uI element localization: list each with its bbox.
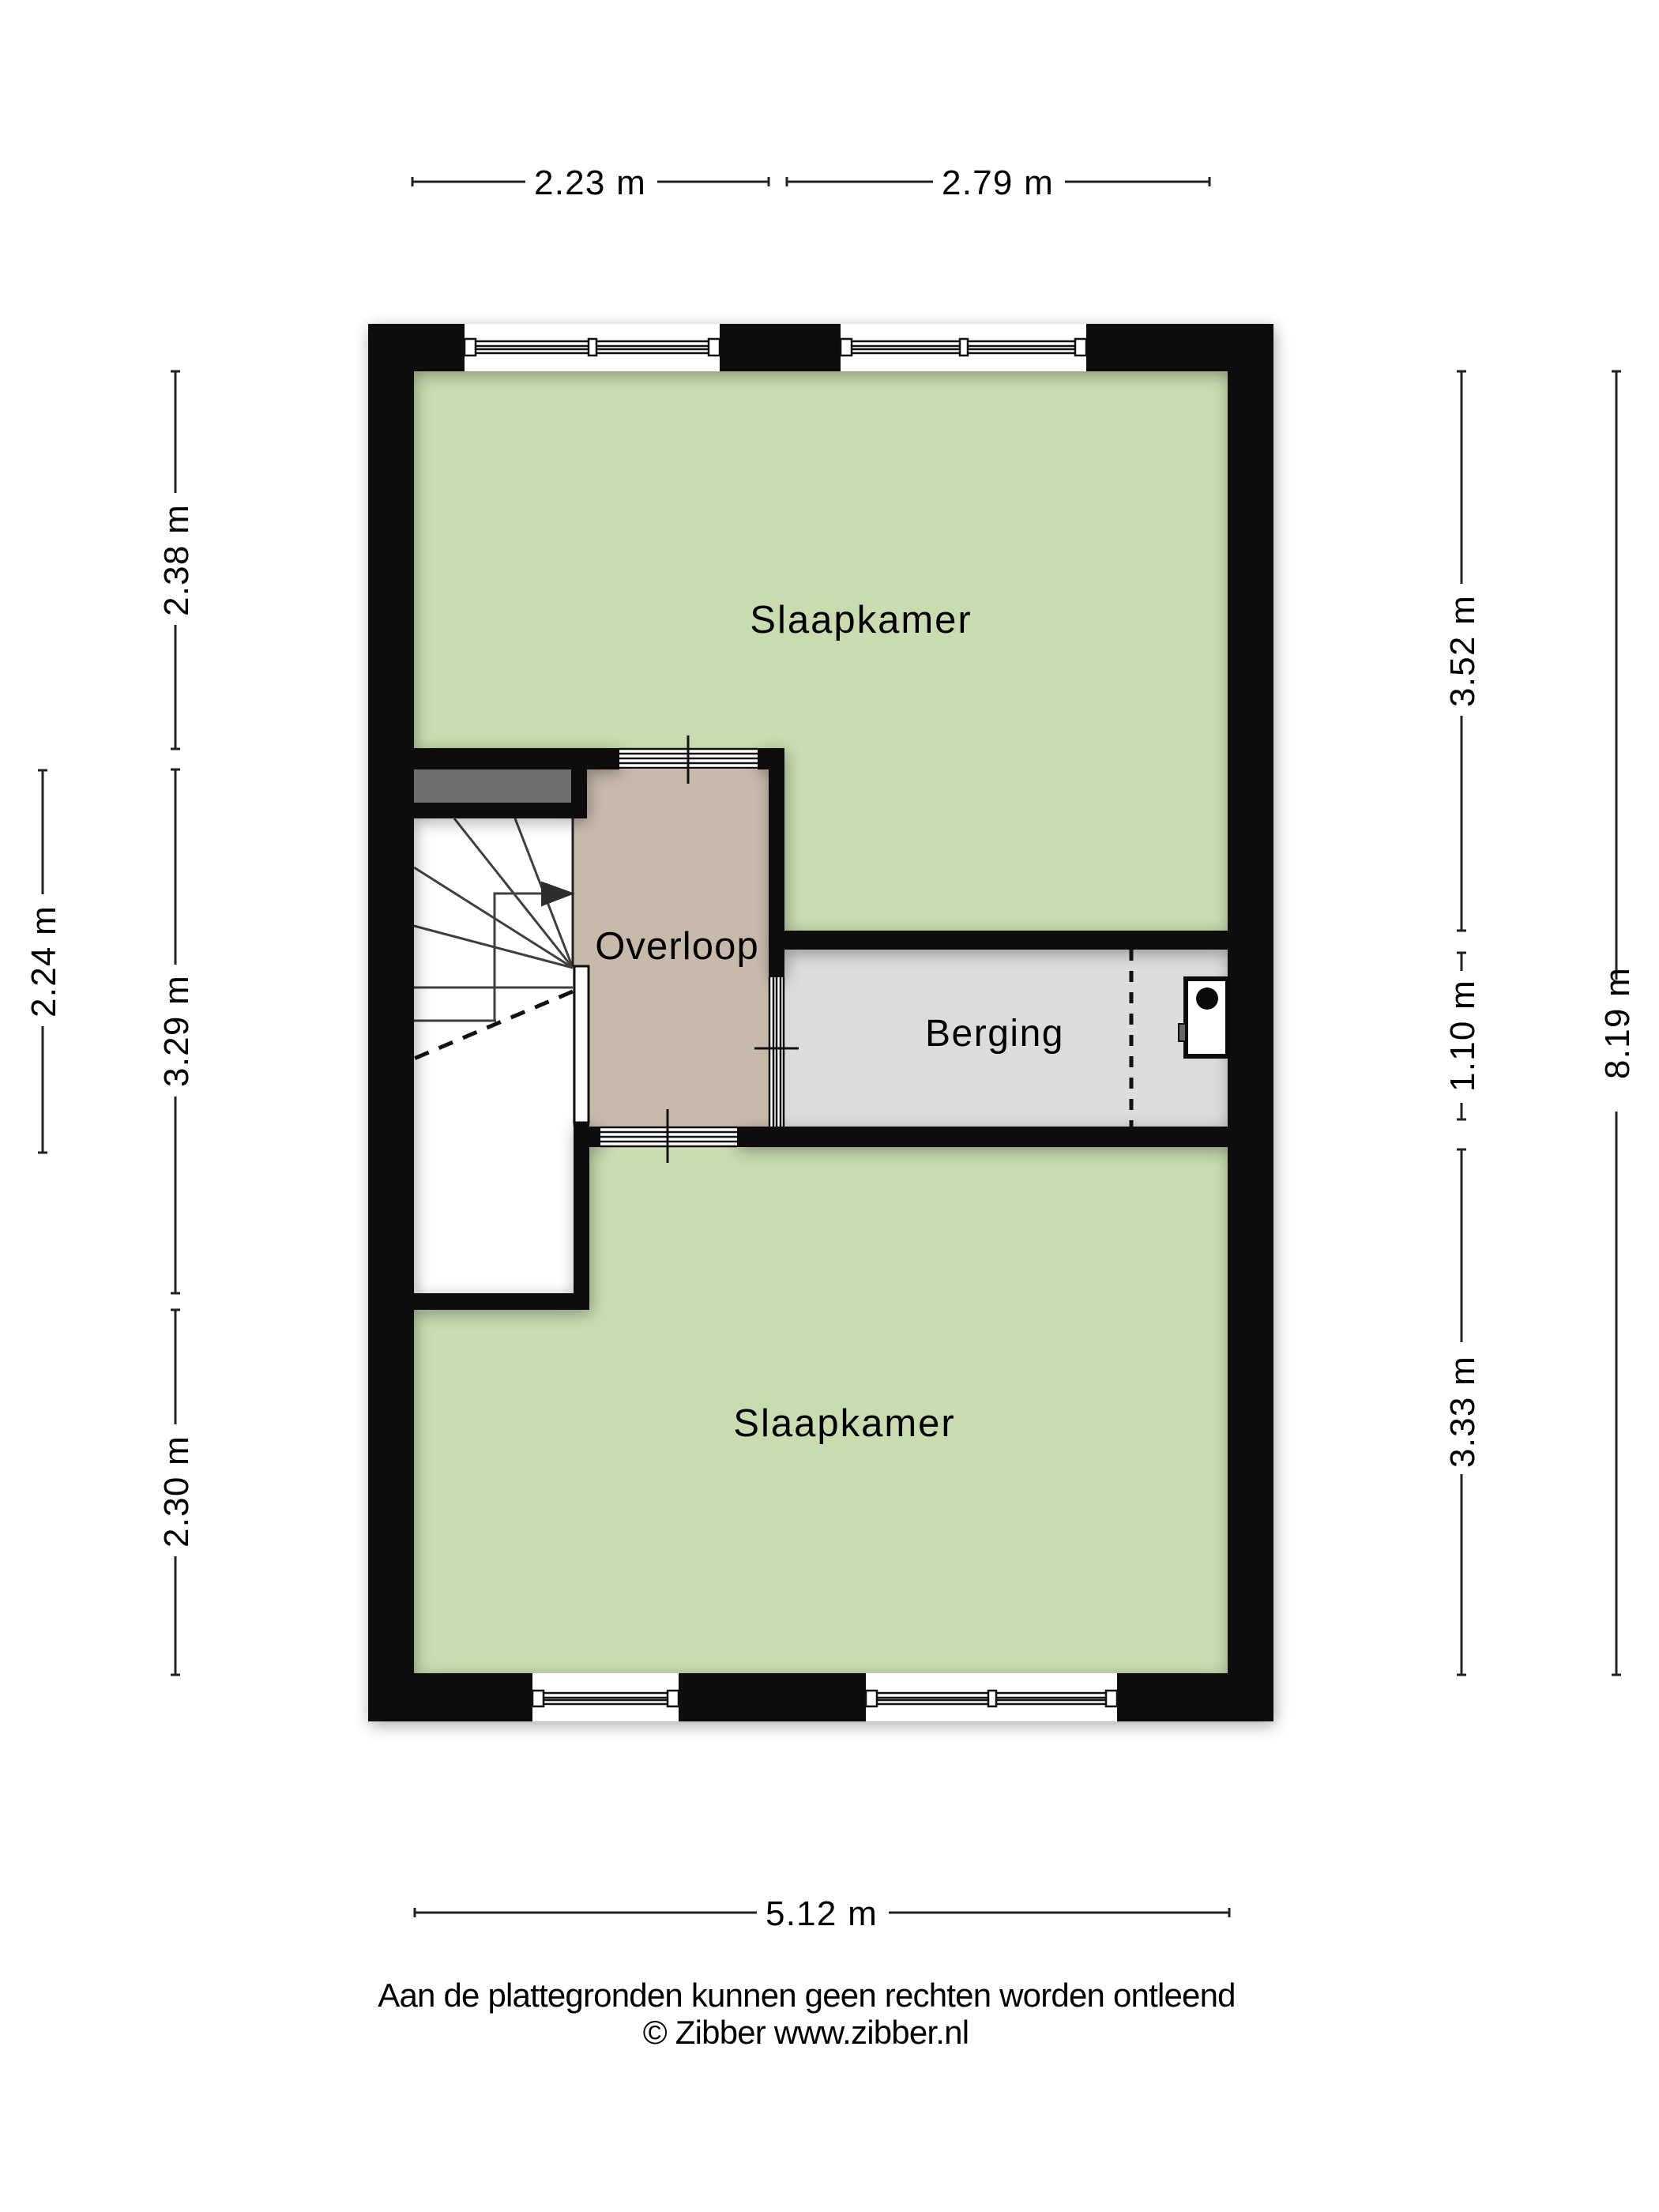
svg-text:3.33 m: 3.33 m <box>1443 1356 1482 1468</box>
svg-text:2.38 m: 2.38 m <box>157 504 196 616</box>
svg-text:Slaapkamer: Slaapkamer <box>733 1402 955 1445</box>
svg-text:Berging: Berging <box>925 1013 1064 1055</box>
svg-text:2.79 m: 2.79 m <box>942 164 1054 202</box>
svg-text:1.10 m: 1.10 m <box>1443 980 1482 1092</box>
svg-text:2.24 m: 2.24 m <box>24 905 63 1018</box>
svg-text:© Zibber www.zibber.nl: © Zibber www.zibber.nl <box>643 2014 969 2051</box>
svg-text:2.23 m: 2.23 m <box>534 164 646 202</box>
svg-text:5.12 m: 5.12 m <box>766 1894 878 1933</box>
svg-text:3.29 m: 3.29 m <box>157 975 196 1087</box>
svg-text:3.52 m: 3.52 m <box>1443 595 1482 707</box>
svg-text:Slaapkamer: Slaapkamer <box>750 599 972 641</box>
svg-text:2.30 m: 2.30 m <box>157 1435 196 1548</box>
svg-text:Aan de plattegronden kunnen ge: Aan de plattegronden kunnen geen rechten… <box>378 1977 1235 2014</box>
svg-text:Overloop: Overloop <box>595 925 759 968</box>
svg-text:8.19 m: 8.19 m <box>1598 967 1637 1079</box>
